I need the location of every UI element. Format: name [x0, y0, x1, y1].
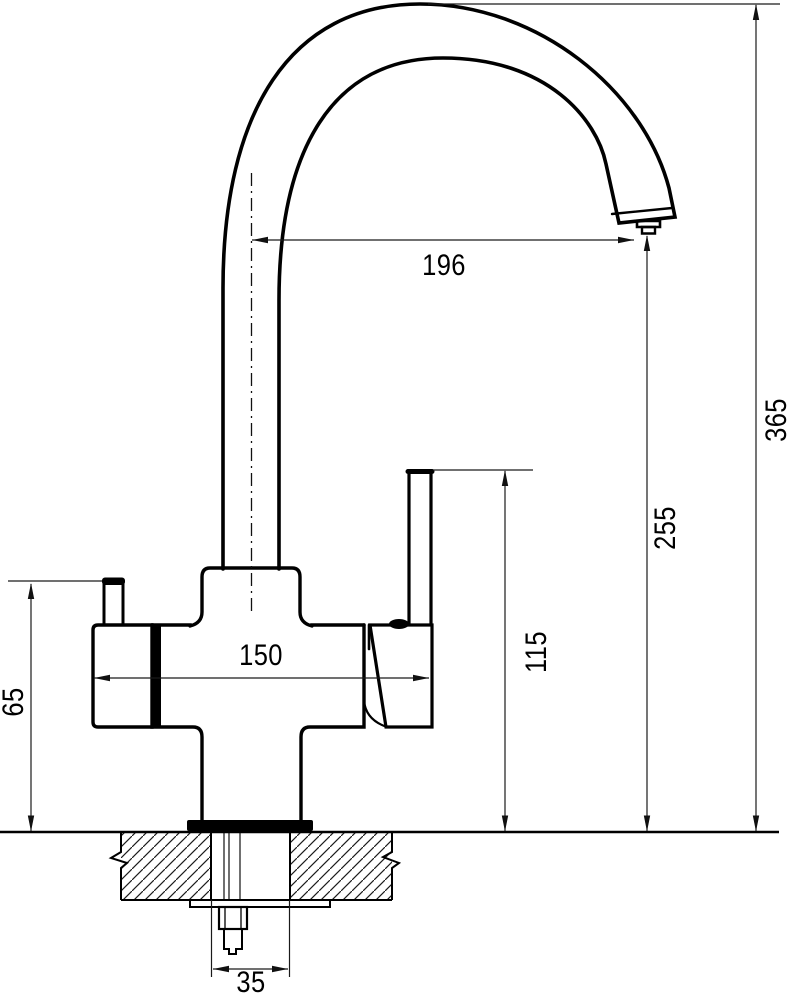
dim-label-handle-top-height: 115 — [522, 631, 552, 673]
dim-label-side-valve-height: 65 — [0, 687, 29, 716]
faucet-dimension-drawing: 196 365 255 115 150 65 35 — [0, 0, 792, 998]
drawing-canvas — [0, 0, 792, 998]
dim-label-body-overall-width: 150 — [239, 641, 283, 671]
dimension-arrows — [28, 4, 759, 972]
faucet-body — [93, 568, 432, 820]
countertop — [111, 833, 399, 901]
right-valve-block — [370, 625, 432, 727]
pin-cap — [102, 578, 125, 586]
dim-label-spout-outlet-height: 255 — [651, 506, 681, 550]
joint-band — [151, 624, 162, 729]
threaded-stud — [224, 929, 242, 954]
dim-label-overall-height: 365 — [762, 398, 792, 442]
lever-pivot-dome — [389, 619, 409, 629]
side-valve-pin — [102, 578, 125, 626]
countertop-hatch-left — [121, 833, 211, 900]
mounting-nut — [219, 907, 247, 929]
left-valve-block — [93, 625, 153, 727]
base-flange — [187, 820, 313, 831]
lever-handle — [389, 471, 432, 629]
dim-label-spout-reach: 196 — [422, 251, 466, 281]
countertop-hatch-right — [290, 833, 392, 900]
dim-label-mounting-hole-width: 35 — [236, 968, 265, 998]
faucet-spout — [223, 4, 675, 569]
